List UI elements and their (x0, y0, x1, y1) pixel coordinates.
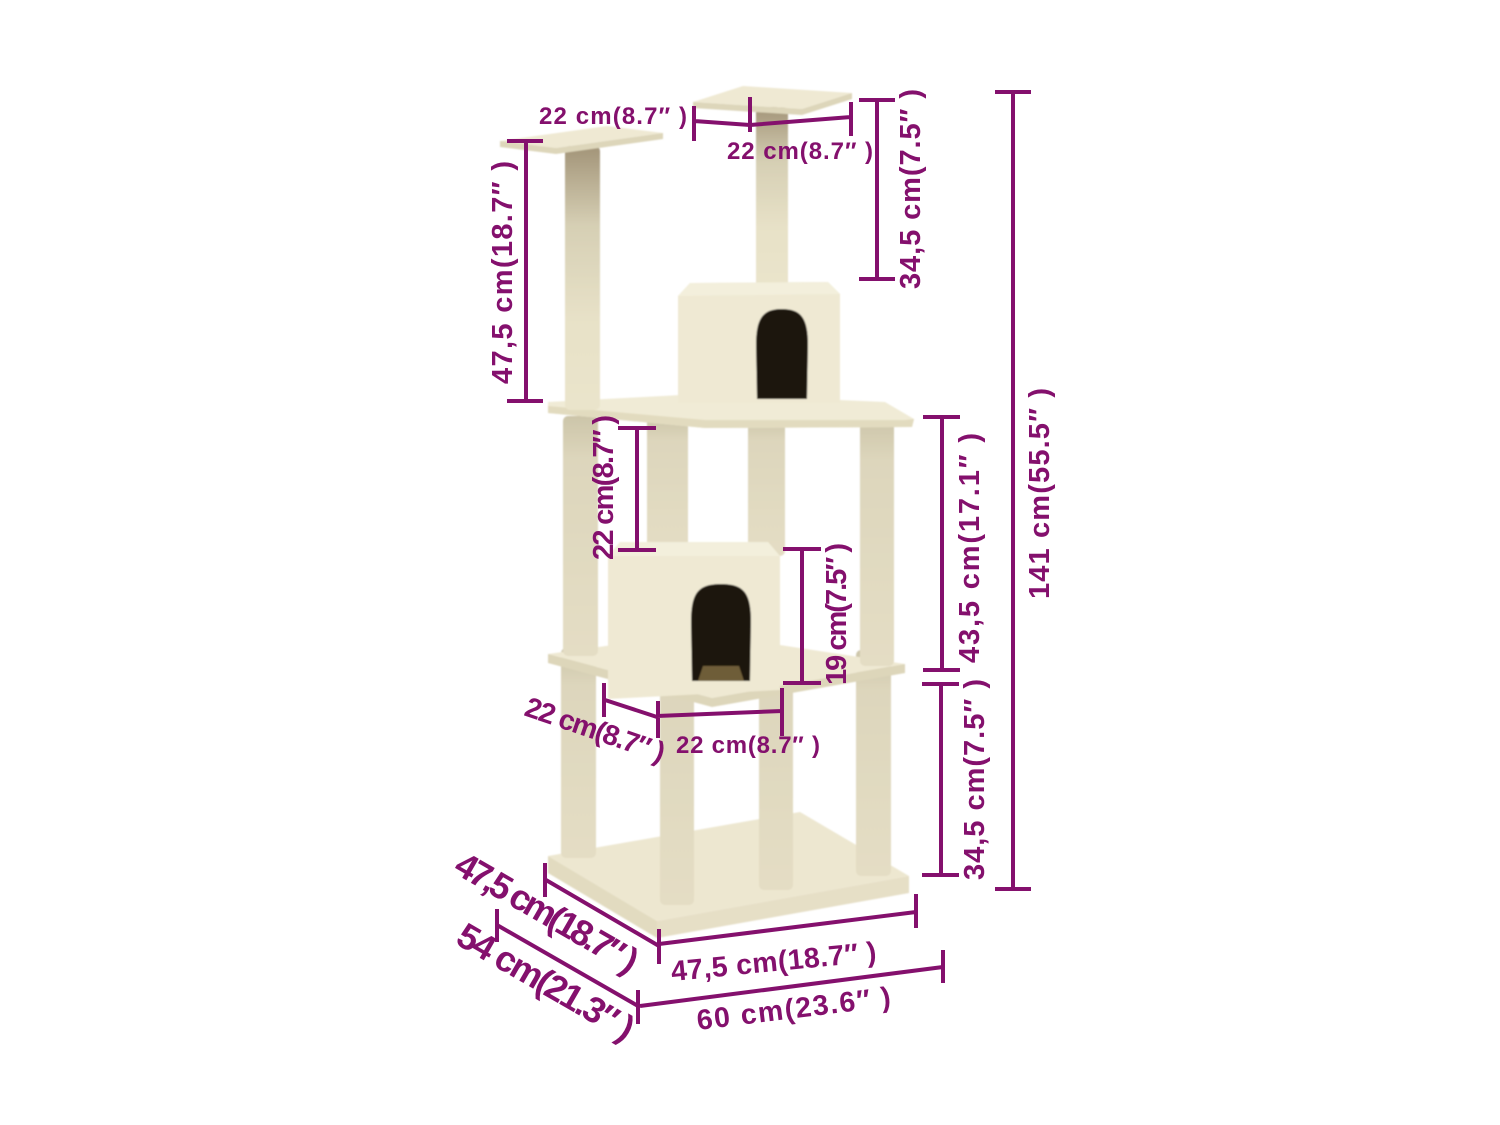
svg-text:43,5 cm(17.1″ ): 43,5 cm(17.1″ ) (954, 433, 986, 663)
svg-text:19 cm(7.5″ ): 19 cm(7.5″ ) (821, 543, 853, 685)
svg-text:22 cm(8.7″ ): 22 cm(8.7″ ) (727, 138, 873, 165)
svg-text:22 cm(8.7″ ): 22 cm(8.7″ ) (539, 103, 687, 130)
svg-text:22 cm(8.7″ ): 22 cm(8.7″ ) (588, 415, 620, 560)
svg-text:34,5 cm(7.5″ ): 34,5 cm(7.5″ ) (959, 679, 991, 880)
svg-text:47,5 cm(18.7″ ): 47,5 cm(18.7″ ) (487, 161, 519, 384)
svg-text:34,5 cm(7.5″ ): 34,5 cm(7.5″ ) (895, 89, 927, 289)
svg-text:60 cm(23.6″ ): 60 cm(23.6″ ) (695, 981, 892, 1037)
svg-text:22 cm(8.7″ ): 22 cm(8.7″ ) (676, 732, 820, 759)
svg-text:141 cm(55.5″ ): 141 cm(55.5″ ) (1024, 388, 1056, 599)
